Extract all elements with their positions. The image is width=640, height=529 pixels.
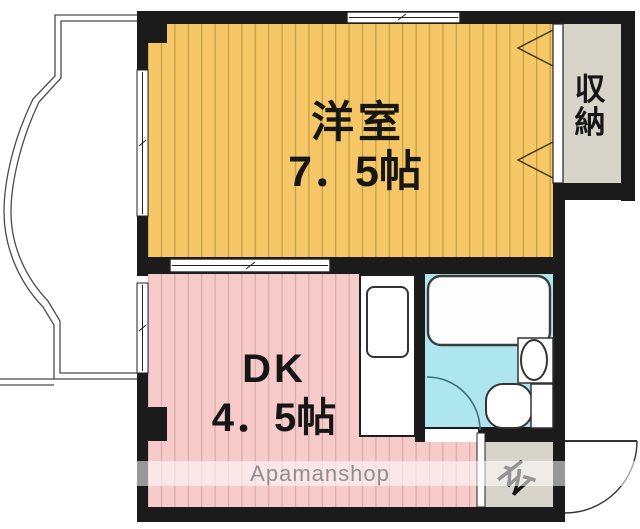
washbasin-icon — [521, 340, 547, 380]
kitchen-sink-icon — [367, 287, 408, 357]
western-room-size-label: 7．5帖 — [288, 148, 422, 196]
wall-left-pillar — [148, 407, 167, 441]
floorplan-svg: 洋室 7．5帖 DK 4．5帖 収 納 玄 Apamanshop — [0, 0, 640, 529]
kitchen-unit — [360, 275, 415, 436]
toilet-bowl-icon — [486, 384, 532, 428]
wall-bottom — [137, 507, 565, 522]
bathroom-doorway — [425, 429, 478, 442]
wall-kitchen-bathroom — [415, 274, 425, 434]
watermark-text: Apamanshop — [250, 461, 390, 486]
wall-closet-bottom — [553, 183, 635, 200]
closet-door-strip — [553, 24, 563, 183]
dk-name-label: DK — [242, 347, 306, 391]
closet-label-char2: 納 — [575, 105, 606, 140]
closet-label-char1: 収 — [575, 72, 606, 107]
toilet-tank-icon — [531, 384, 553, 428]
wall-right-upper — [621, 11, 635, 201]
dk-size-label: 4．5帖 — [212, 396, 337, 440]
western-room-name-label: 洋室 — [311, 99, 405, 147]
closet-label: 収 納 — [575, 72, 606, 140]
bathtub-icon — [428, 276, 550, 345]
wall-left-upper — [137, 24, 148, 70]
wall-left-lower — [137, 373, 148, 509]
floorplan-image: 洋室 7．5帖 DK 4．5帖 収 納 玄 Apamanshop — [0, 0, 640, 529]
